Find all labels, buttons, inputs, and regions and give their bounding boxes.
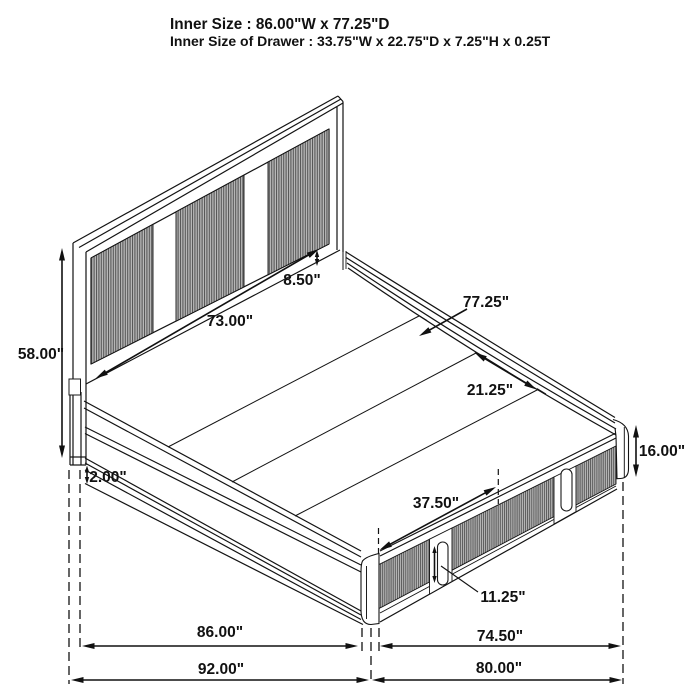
- svg-text:2.00": 2.00": [89, 469, 127, 486]
- svg-text:86.00": 86.00": [197, 624, 243, 641]
- svg-text:58.00": 58.00": [18, 346, 64, 363]
- svg-text:74.50": 74.50": [477, 628, 523, 645]
- svg-text:16.00": 16.00": [639, 443, 685, 460]
- svg-text:92.00": 92.00": [198, 661, 244, 678]
- svg-text:73.00": 73.00": [207, 313, 253, 330]
- svg-text:8.50": 8.50": [283, 272, 321, 289]
- svg-text:21.25": 21.25": [467, 382, 513, 399]
- svg-text:77.25": 77.25": [463, 294, 509, 311]
- svg-text:37.50": 37.50": [413, 495, 459, 512]
- svg-text:80.00": 80.00": [476, 660, 522, 677]
- svg-text:11.25": 11.25": [480, 589, 525, 606]
